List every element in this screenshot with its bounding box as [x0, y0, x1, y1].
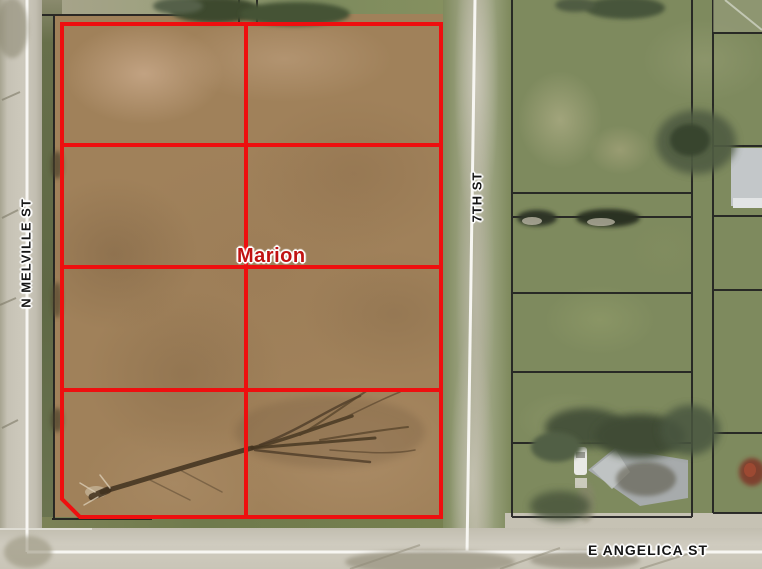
- street-label-n-melville-st: N MELVILLE ST: [19, 198, 34, 308]
- street-label-e-angelica-st: E ANGELICA ST: [588, 542, 708, 558]
- fallen-tree: [80, 390, 425, 505]
- street-label-7th-st: 7TH ST: [470, 172, 485, 223]
- map-overlay-graphics: [0, 0, 762, 569]
- city-label-marion: Marion: [237, 245, 306, 268]
- house-southeast: [577, 448, 688, 522]
- building-east-edge: [713, 0, 762, 208]
- aerial-map-canvas[interactable]: N MELVILLE ST 7TH ST E ANGELICA ST Mario…: [0, 0, 762, 569]
